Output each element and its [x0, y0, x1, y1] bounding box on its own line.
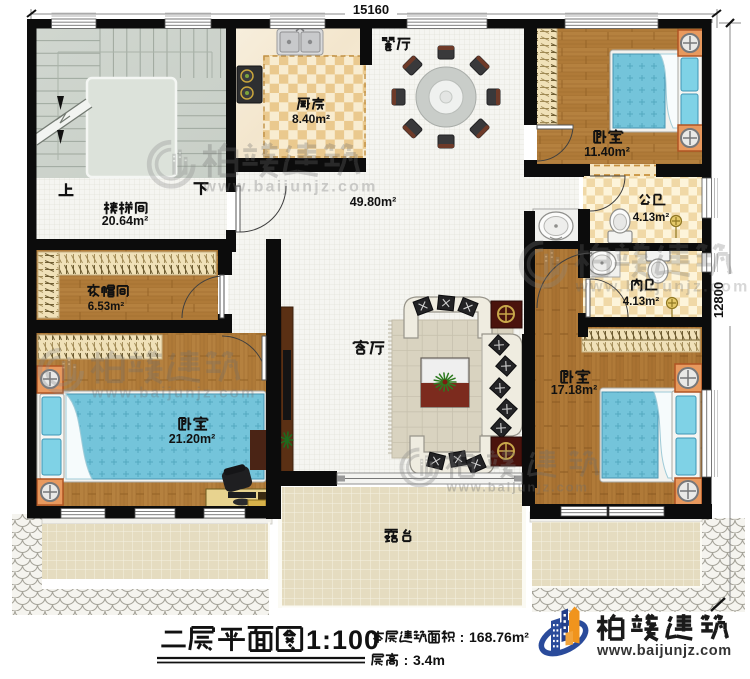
svg-text:168.76m²: 168.76m² [469, 629, 529, 645]
svg-text:1:100: 1:100 [306, 625, 380, 655]
svg-text:21.20m²: 21.20m² [169, 432, 216, 446]
svg-text::: : [404, 652, 409, 668]
svg-text:4.13m²: 4.13m² [623, 296, 660, 308]
svg-text:17.18m²: 17.18m² [551, 383, 598, 397]
svg-text:4.13m²: 4.13m² [633, 212, 670, 224]
svg-text:11.40m²: 11.40m² [584, 145, 630, 159]
svg-text:www.baijunjz.com: www.baijunjz.com [596, 643, 732, 659]
svg-text::: : [460, 629, 465, 645]
svg-text:www.baijunjz.com: www.baijunjz.com [574, 279, 749, 296]
svg-text:www.baijunjz.com: www.baijunjz.com [446, 480, 589, 495]
svg-text:20.64m²: 20.64m² [102, 214, 149, 228]
svg-text:6.53m²: 6.53m² [88, 301, 125, 313]
svg-text:www.baijunjz.com: www.baijunjz.com [91, 384, 257, 401]
svg-text:3.4m: 3.4m [413, 652, 445, 668]
svg-text:15160: 15160 [353, 2, 389, 17]
svg-text:49.80m²: 49.80m² [350, 195, 397, 209]
svg-text:www.baijunjz.com: www.baijunjz.com [202, 179, 377, 196]
svg-text:8.40m²: 8.40m² [292, 112, 330, 126]
